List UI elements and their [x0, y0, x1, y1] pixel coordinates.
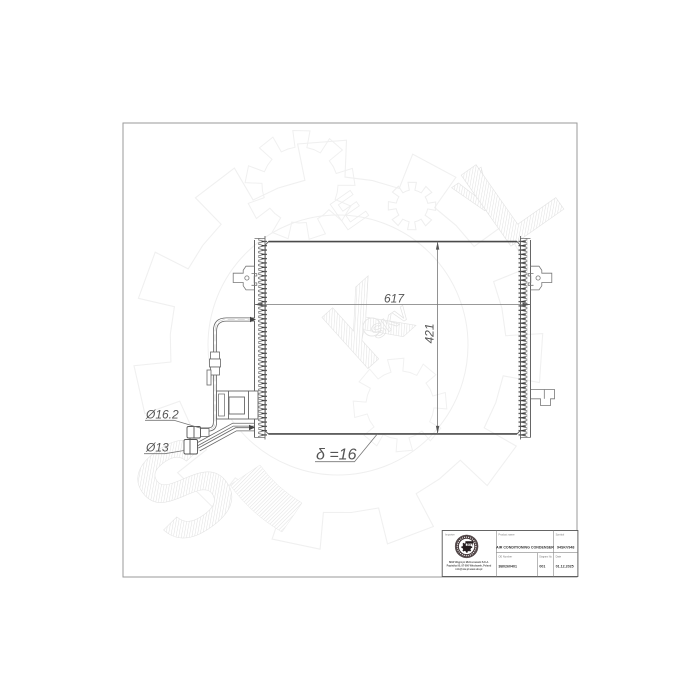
svg-text:δ =16: δ =16 [316, 447, 357, 464]
svg-text:OE Number: OE Number [498, 555, 512, 559]
svg-text:01.12.2025: 01.12.2025 [556, 565, 574, 569]
svg-text:001: 001 [539, 565, 545, 569]
svg-text:617: 617 [384, 292, 405, 306]
svg-text:Ø13: Ø13 [145, 441, 169, 455]
svg-text:421: 421 [423, 323, 437, 343]
svg-text:Diagram No.: Diagram No. [539, 555, 552, 558]
svg-text:Ø16.2: Ø16.2 [145, 408, 179, 422]
svg-text:AIR CONDITIONING CONDENSER: AIR CONDITIONING CONDENSER [496, 545, 554, 549]
svg-text:SKV: SKV [467, 545, 472, 547]
svg-text:94SKV948: 94SKV948 [557, 545, 574, 549]
svg-text:Date: Date [556, 555, 562, 559]
svg-text:3B0260401: 3B0260401 [498, 565, 517, 569]
svg-text:Product name: Product name [498, 533, 515, 537]
svg-text:Symbol: Symbol [556, 533, 565, 537]
svg-text:info@skv.pl www.skv.pl: info@skv.pl www.skv.pl [456, 568, 483, 571]
svg-text:Importer: Importer [445, 533, 455, 537]
